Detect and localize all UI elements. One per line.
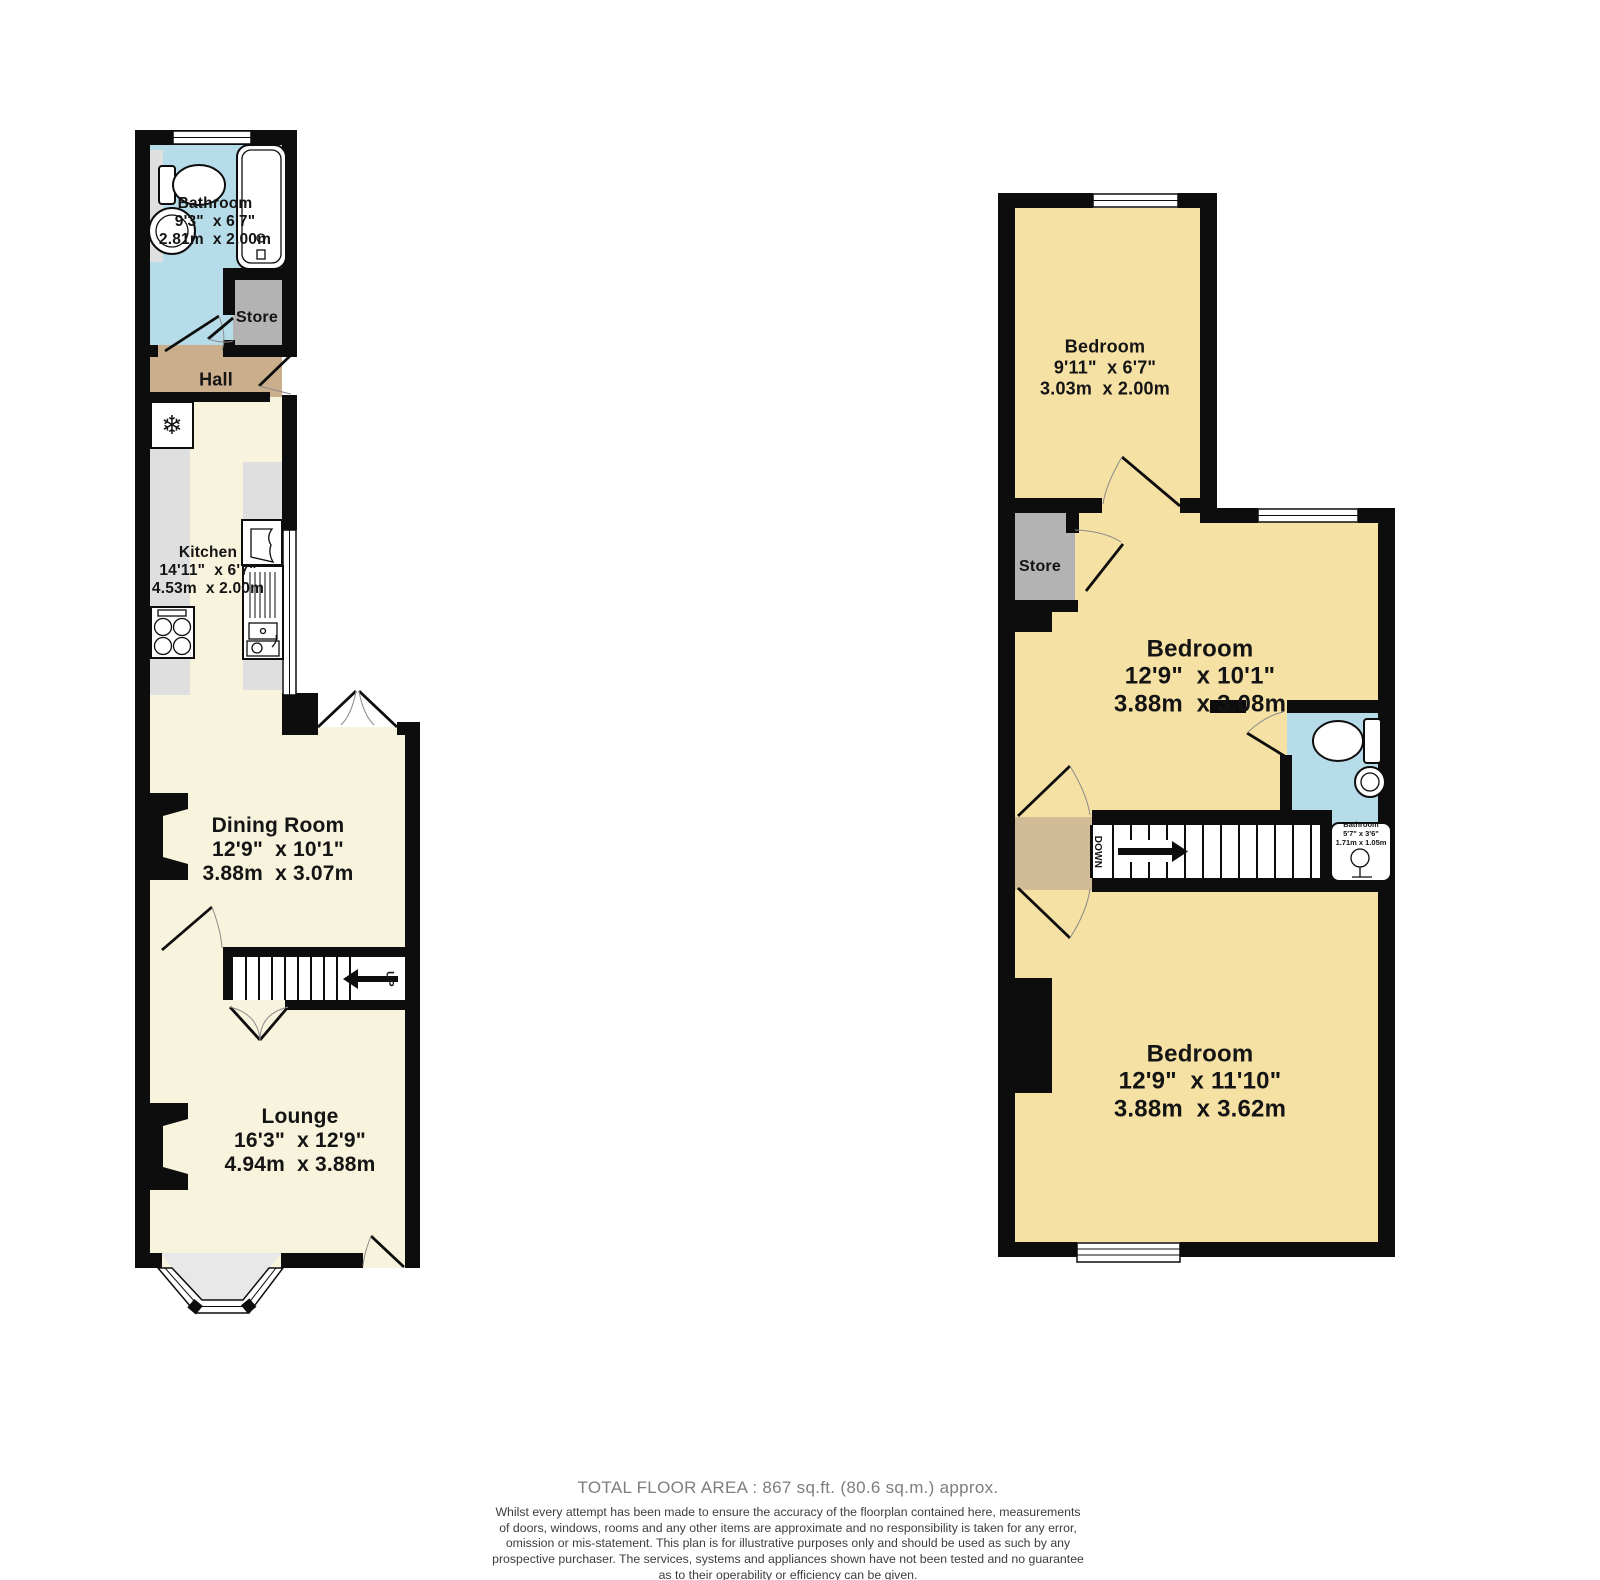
stairs-down-label: DOWN — [1080, 836, 1126, 868]
bedroom-mid-window — [1258, 509, 1358, 522]
bathroom-first-label: Bathroom5'7" x 3'6"1.71m x 1.05m — [1336, 804, 1387, 856]
footer: TOTAL FLOOR AREA : 867 sq.ft. (80.6 sq.m… — [0, 1478, 1576, 1580]
bedroom-chimney-breast — [1015, 978, 1052, 1093]
kitchen-label: Kitchen14'11" x 6'7"4.53m x 2.00m — [152, 508, 264, 616]
bedroom-bottom-label: Bedroom12'9" x 11'10"3.88m x 3.62m — [1114, 985, 1286, 1152]
dining-french-doors — [318, 691, 397, 727]
store-ground-label: Store — [236, 272, 278, 346]
disclaimer-line: of doors, windows, rooms and any other i… — [0, 1521, 1576, 1537]
basin-first-icon — [1355, 767, 1385, 797]
bedroom-bottom-window — [1077, 1243, 1180, 1262]
bedroom-top-label: Bedroom9'11" x 6'7"3.03m x 2.00m — [1040, 294, 1170, 419]
disclaimer-line: Whilst every attempt has been made to en… — [0, 1505, 1576, 1521]
disclaimer-line: as to their operability or efficiency ca… — [0, 1568, 1576, 1580]
disclaimer-line: omission or mis-statement. This plan is … — [0, 1536, 1576, 1552]
stairs-up-label: UP — [371, 971, 422, 987]
hall-label: Hall — [199, 327, 233, 411]
bathroom-window — [173, 131, 251, 144]
store-first-label: Store — [1019, 521, 1061, 595]
total-floor-area: TOTAL FLOOR AREA : 867 sq.ft. (80.6 sq.m… — [0, 1478, 1576, 1498]
dining-room-label: Dining Room12'9" x 10'1"3.88m x 3.07m — [202, 765, 353, 911]
kitchen-window — [283, 530, 296, 695]
bedroom-top-window — [1093, 194, 1178, 207]
bathroom-ground-label: Bathroom9'3" x 6'7"2.81m x 2.00m — [159, 159, 271, 267]
disclaimer-line: prospective purchaser. The services, sys… — [0, 1552, 1576, 1568]
lounge-label: Lounge16'3" x 12'9"4.94m x 3.88m — [224, 1056, 375, 1202]
fridge-icon: ❄ — [151, 402, 193, 448]
bedroom-mid-label: Bedroom12'9" x 10'1"3.88m x 3.08m — [1114, 580, 1286, 747]
toilet-first-icon — [1313, 719, 1381, 763]
floorplan-page: ❄ — [0, 0, 1600, 1580]
svg-text:❄: ❄ — [161, 411, 183, 441]
